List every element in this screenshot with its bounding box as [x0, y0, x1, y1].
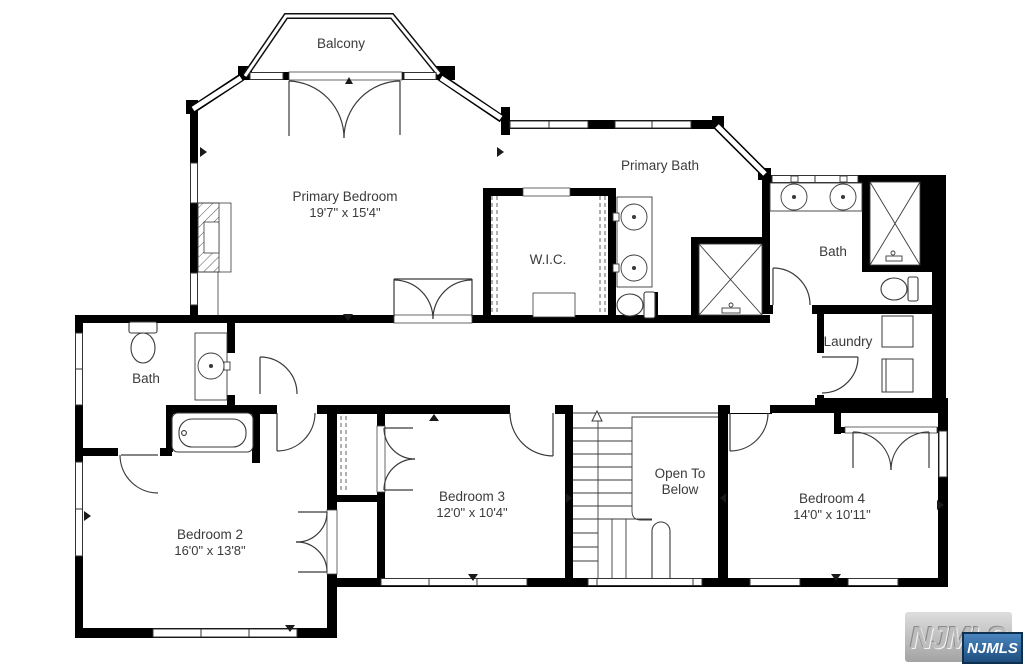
- bedroom3-label: Bedroom 3 12'0" x 10'4": [436, 489, 507, 521]
- room-dims: 14'0" x 10'11": [793, 507, 871, 523]
- fireplace-icon: [198, 203, 231, 315]
- room-name: Bedroom 4: [793, 491, 871, 507]
- bath-left-label: Bath: [132, 371, 160, 387]
- stair-rail: [652, 522, 670, 578]
- shower-icon: [870, 182, 920, 265]
- closet-rod-lines: [341, 416, 346, 492]
- toilet-icon: [617, 292, 655, 318]
- room-name: W.I.C.: [530, 252, 567, 267]
- bedroom4-label: Bedroom 4 14'0" x 10'11": [793, 491, 871, 523]
- bathtub-icon: [172, 413, 253, 452]
- room-name: Bath: [132, 371, 160, 386]
- room-name: Balcony: [317, 36, 365, 51]
- primary-bath-label: Primary Bath: [621, 158, 699, 174]
- njmls-badge-text: NJMLS: [967, 640, 1018, 657]
- room-dims: 19'7" x 15'4": [292, 205, 397, 221]
- room-name: Bedroom 2: [174, 527, 245, 543]
- balcony-label: Balcony: [317, 36, 365, 52]
- bath-right-label: Bath: [819, 244, 847, 260]
- washer-icon: [882, 316, 913, 347]
- room-dims: 12'0" x 10'4": [436, 505, 507, 521]
- floorplan-page: Balcony Primary Bedroom 19'7" x 15'4" Pr…: [0, 0, 1024, 665]
- double-vanity-icon: [613, 197, 652, 287]
- bedroom2-label: Bedroom 2 16'0" x 13'8": [174, 527, 245, 559]
- room-name: Bedroom 3: [436, 489, 507, 505]
- toilet-icon: [881, 277, 918, 301]
- dryer-icon: [882, 359, 913, 392]
- room-name: Laundry: [824, 334, 873, 349]
- room-name: Bath: [819, 244, 847, 259]
- room-name: Below: [655, 482, 706, 498]
- primary-bedroom-label: Primary Bedroom 19'7" x 15'4": [292, 189, 397, 221]
- shower-icon: [699, 244, 762, 315]
- sink-icon: [195, 333, 230, 400]
- wic-label: W.I.C.: [530, 252, 567, 268]
- room-name: Primary Bedroom: [292, 189, 397, 205]
- njmls-watermark-badge: NJMLS: [962, 632, 1023, 664]
- floorplan-drawing: [0, 0, 1024, 665]
- open-to-below-label: Open To Below: [655, 466, 706, 498]
- room-name: Primary Bath: [621, 158, 699, 173]
- room-name: Open To: [655, 466, 706, 482]
- room-dims: 16'0" x 13'8": [174, 543, 245, 559]
- toilet-icon: [129, 322, 157, 363]
- laundry-label: Laundry: [824, 334, 873, 350]
